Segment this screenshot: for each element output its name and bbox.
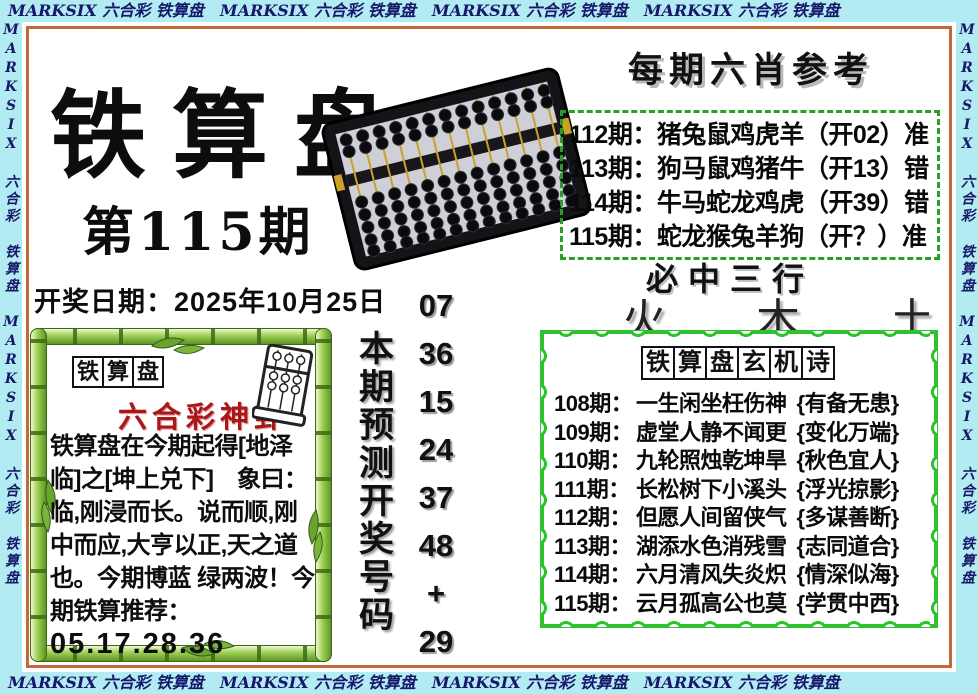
prediction-number: 07 xyxy=(408,282,464,330)
poem-hint: {浮光掠影} xyxy=(797,476,899,505)
issue-number: 第115期 xyxy=(82,190,315,265)
mystic-poem-title: 铁算盘玄机诗 xyxy=(544,346,934,380)
poem-issue: 113期： xyxy=(554,533,626,562)
prediction-number: 36 xyxy=(408,330,464,378)
poem-text: 但愿人间留侠气 xyxy=(636,504,787,533)
poem-text: 长松树下小溪头 xyxy=(636,476,787,505)
zodiac-row: 112期：猪兔鼠鸡虎羊（开02）准 xyxy=(569,118,933,152)
mystic-poem-box: 铁算盘玄机诗 108期： 一生闲坐枉伤神 {有备无患} 109期： 虚堂人静不闻… xyxy=(540,330,938,628)
poem-issue: 108期： xyxy=(554,390,626,419)
prediction-number: 29 xyxy=(408,618,464,666)
stamp-scallop-left xyxy=(541,338,551,620)
divination-text: 铁算盘在今期起得[地泽临]之[坤上兑下] 象曰：临,刚浸而长。说而顺,刚中而应,… xyxy=(50,430,316,628)
stamp-scallop-bottom xyxy=(548,617,930,627)
abacus-sketch-icon xyxy=(252,344,318,428)
poem-issue: 111期： xyxy=(554,476,626,505)
stamp-scallop-top xyxy=(548,331,930,341)
draw-date: 开奖日期：2025年10月25日 xyxy=(34,280,386,319)
border-bottom: MARKSIX 六合彩 铁算盘 MARKSIX 六合彩 铁算盘 MARKSIX … xyxy=(0,672,978,694)
prediction-number: 15 xyxy=(408,378,464,426)
zodiac-row: 115期：蛇龙猴兔羊狗（开？）准 xyxy=(569,220,933,254)
poem-issue: 115期： xyxy=(554,590,626,619)
poem-hint: {志同道合} xyxy=(797,533,899,562)
poem-text: 虚堂人静不闻更 xyxy=(636,419,787,448)
zodiac-history-box: 112期：猪兔鼠鸡虎羊（开02）准 113期：狗马鼠鸡猪牛（开13）错 114期… xyxy=(560,110,940,260)
poem-row: 108期： 一生闲坐枉伤神 {有备无患} xyxy=(554,390,926,419)
border-right: MARKSIX 六合彩 铁算盘 MARKSIX 六合彩 铁算盘 MARKSIX … xyxy=(956,22,978,672)
poem-hint: {秋色宜人} xyxy=(797,447,899,476)
prediction-label: 本期预测开奖号码 xyxy=(348,330,399,650)
prediction-number: 37 xyxy=(408,474,464,522)
poem-issue: 110期： xyxy=(554,447,626,476)
poem-row: 109期： 虚堂人静不闻更 {变化万端} xyxy=(554,419,926,448)
zodiac-section-title: 每期六肖参考 xyxy=(596,42,906,93)
poem-text: 一生闲坐枉伤神 xyxy=(636,390,787,419)
poem-issue: 109期： xyxy=(554,419,626,448)
poem-hint: {情深似海} xyxy=(797,561,899,590)
poem-row: 115期： 云月孤高公也莫 {学贯中西} xyxy=(554,590,926,619)
border-top: MARKSIX 六合彩 铁算盘 MARKSIX 六合彩 铁算盘 MARKSIX … xyxy=(0,0,978,22)
poem-row: 111期： 长松树下小溪头 {浮光掠影} xyxy=(554,476,926,505)
poem-text: 六月清风失炎炽 xyxy=(636,561,787,590)
zodiac-row: 113期：狗马鼠鸡猪牛（开13）错 xyxy=(569,152,933,186)
border-left: MARKSIX 六合彩 铁算盘 MARKSIX 六合彩 铁算盘 MARKSIX … xyxy=(0,22,22,672)
poem-issue: 114期： xyxy=(554,561,626,590)
poem-issue: 112期： xyxy=(554,504,626,533)
poem-row: 114期： 六月清风失炎炽 {情深似海} xyxy=(554,561,926,590)
poem-hint: {多谋善断} xyxy=(797,504,899,533)
abacus-image xyxy=(332,86,582,271)
recommended-numbers: 05.17.28.36 xyxy=(50,628,225,661)
prediction-number: 48 xyxy=(408,522,464,570)
mystic-poem-rows: 108期： 一生闲坐枉伤神 {有备无患} 109期： 虚堂人静不闻更 {变化万端… xyxy=(554,390,926,618)
bamboo-box-title: 铁算盘 xyxy=(74,356,164,388)
tiesuanpan-poster: MARKSIX 六合彩 铁算盘 MARKSIX 六合彩 铁算盘 MARKSIX … xyxy=(0,0,978,694)
poem-hint: {有备无患} xyxy=(797,390,899,419)
prediction-number: 24 xyxy=(408,426,464,474)
poem-row: 110期： 九轮照烛乾坤旱 {秋色宜人} xyxy=(554,447,926,476)
poem-text: 九轮照烛乾坤旱 xyxy=(636,447,787,476)
poem-row: 112期： 但愿人间留侠气 {多谋善断} xyxy=(554,504,926,533)
poem-hint: {学贯中西} xyxy=(797,590,899,619)
poem-text: 云月孤高公也莫 xyxy=(636,590,787,619)
poem-text: 湖添水色消残雪 xyxy=(636,533,787,562)
plus-sign: + xyxy=(408,570,464,618)
zodiac-row: 114期：牛马蛇龙鸡虎（开39）错 xyxy=(569,186,933,220)
bamboo-box: 铁算盘 六合彩神卦 铁算盘在今期起得[地泽临]之[坤上兑下] 象曰：临,刚浸而长… xyxy=(30,328,332,662)
stamp-scallop-right xyxy=(927,338,937,620)
poem-hint: {变化万端} xyxy=(797,419,899,448)
poem-row: 113期： 湖添水色消残雪 {志同道合} xyxy=(554,533,926,562)
prediction-numbers: 07 36 15 24 37 48 + 29 xyxy=(408,282,464,666)
